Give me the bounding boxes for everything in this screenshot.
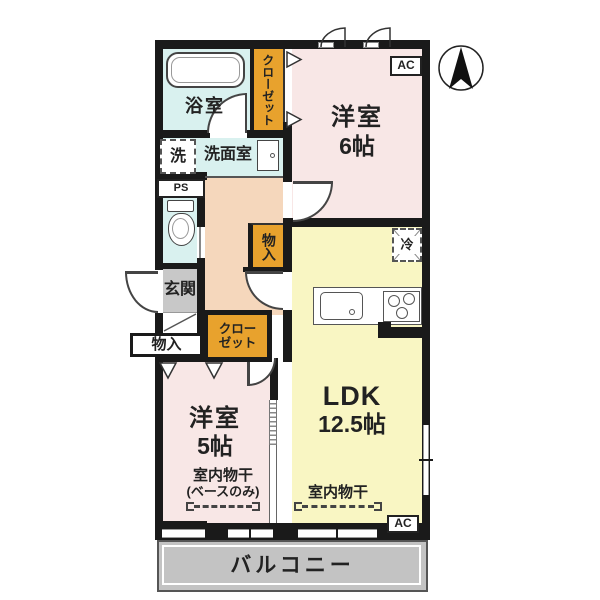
fridge-space: 冷	[392, 228, 422, 262]
kitchen-wall-stub-h	[391, 327, 425, 338]
closet-fold-gap	[285, 49, 292, 122]
kitchen-wall-stub-v	[378, 322, 391, 338]
bathtub	[166, 52, 245, 88]
bath-door-leaf	[245, 93, 248, 133]
toilet-door-leaf	[199, 227, 201, 258]
vanity	[257, 140, 279, 171]
sliding-door-track	[269, 400, 277, 445]
bath-label: 浴室	[168, 96, 242, 116]
burner-2	[403, 293, 415, 305]
pipe-space-box: PS	[157, 179, 205, 198]
entry-step-area	[163, 312, 197, 333]
bedroom5-name: 洋室	[179, 405, 251, 433]
wall-hall-ldk-b	[283, 310, 292, 362]
window-right-tick	[419, 459, 433, 461]
balcony-label: バルコニー	[159, 550, 426, 582]
wall-hall-ldk-a	[283, 227, 292, 272]
washroom-label: 洗面室	[198, 146, 258, 164]
storage-left: 物入	[130, 333, 203, 357]
drying-rod-ldk	[294, 502, 382, 511]
bedroom5-door-leaf	[247, 358, 250, 386]
drying-bedroom5-note: (ベースのみ)	[178, 485, 268, 500]
ldk-name: LDK	[312, 381, 392, 411]
washer-label: 洗	[170, 148, 186, 166]
ldk-size: 12.5帖	[308, 412, 396, 438]
toilet-seat	[172, 218, 189, 239]
hall-washroom-line	[205, 176, 283, 178]
room-ldk	[292, 227, 422, 523]
sink-drain	[349, 309, 355, 315]
balcony: バルコニー	[157, 540, 428, 592]
window-sill-bar	[158, 521, 207, 529]
washer-pan: 洗	[160, 139, 196, 174]
entry-door-leaf	[125, 271, 158, 274]
bedroom6-size: 6帖	[327, 134, 387, 160]
window-bottom-a	[162, 529, 205, 538]
entry-door-arc	[125, 272, 158, 313]
kitchen-stove	[383, 291, 420, 322]
toilet-bowl	[168, 213, 195, 246]
closet-mid-label: クロー ゼット	[208, 320, 267, 352]
closet-mid: クロー ゼット	[208, 315, 267, 357]
wall-bedroom6-left	[283, 122, 292, 182]
bedroom6-name: 洋室	[321, 104, 393, 132]
kitchen-sink	[320, 292, 363, 320]
window-b-tick	[249, 526, 251, 541]
bedroom5-size: 5帖	[189, 434, 241, 460]
toilet-tank	[167, 200, 194, 212]
room-divider-line	[269, 445, 277, 523]
window-top-a	[318, 42, 334, 48]
vanity-faucet	[270, 153, 275, 158]
drying-rod-bedroom5	[186, 502, 260, 511]
burner-1	[388, 295, 400, 307]
floor-plan: 洗 PS 物入 クロー ゼット 物入 冷 AC	[0, 0, 600, 600]
bathtub-inner	[171, 57, 240, 83]
ps-label: PS	[174, 182, 189, 194]
ac-box-top: AC	[390, 56, 422, 76]
ldk-door-leaf	[245, 271, 283, 274]
storage-hall-label: 物入	[257, 228, 279, 266]
drying-bedroom5-label: 室内物干	[184, 468, 262, 484]
storage-left-label: 物入	[151, 337, 181, 354]
storage-hall: 物入	[248, 223, 283, 267]
entry-label: 玄関	[162, 281, 198, 299]
drying-ldk-label: 室内物干	[299, 485, 377, 501]
window-c-tick	[336, 526, 338, 541]
burner-3	[396, 307, 408, 319]
window-top-b	[363, 42, 379, 48]
ac-box-bottom: AC	[387, 515, 419, 533]
wall-top	[155, 40, 430, 49]
fridge-label: 冷	[398, 236, 416, 254]
compass-north	[436, 43, 488, 95]
bedroom6-door-leaf	[293, 181, 333, 184]
hall-strip	[272, 315, 283, 355]
closet-top-label: クローゼット	[255, 51, 279, 129]
